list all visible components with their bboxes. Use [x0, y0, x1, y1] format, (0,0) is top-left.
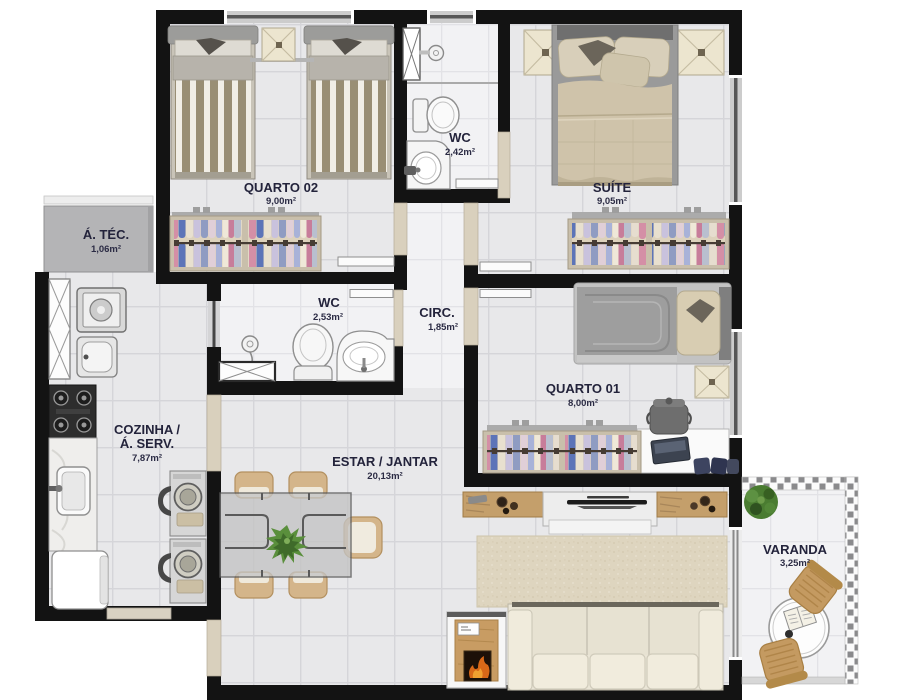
svg-text:VARANDA: VARANDA [763, 542, 828, 557]
svg-text:ESTAR / JANTAR: ESTAR / JANTAR [332, 454, 438, 469]
svg-text:SUÍTE: SUÍTE [593, 180, 632, 195]
svg-text:Á. SERV.: Á. SERV. [120, 436, 174, 451]
svg-text:Á. TÉC.: Á. TÉC. [83, 227, 129, 242]
svg-text:QUARTO 02: QUARTO 02 [244, 180, 318, 195]
svg-text:9,05m²: 9,05m² [597, 196, 627, 207]
svg-text:WC: WC [449, 130, 471, 145]
svg-text:COZINHA /: COZINHA / [114, 422, 180, 437]
svg-text:CIRC.: CIRC. [419, 305, 454, 320]
svg-text:2,42m²: 2,42m² [445, 147, 475, 158]
svg-text:2,53m²: 2,53m² [313, 312, 343, 323]
svg-text:9,00m²: 9,00m² [266, 196, 296, 207]
svg-text:WC: WC [318, 295, 340, 310]
svg-text:1,06m²: 1,06m² [91, 244, 121, 255]
svg-text:1,85m²: 1,85m² [428, 322, 458, 333]
svg-text:20,13m²: 20,13m² [367, 471, 402, 482]
svg-text:8,00m²: 8,00m² [568, 398, 598, 409]
svg-text:QUARTO 01: QUARTO 01 [546, 381, 620, 396]
svg-text:7,87m²: 7,87m² [132, 453, 162, 464]
svg-text:3,25m²: 3,25m² [780, 558, 810, 569]
